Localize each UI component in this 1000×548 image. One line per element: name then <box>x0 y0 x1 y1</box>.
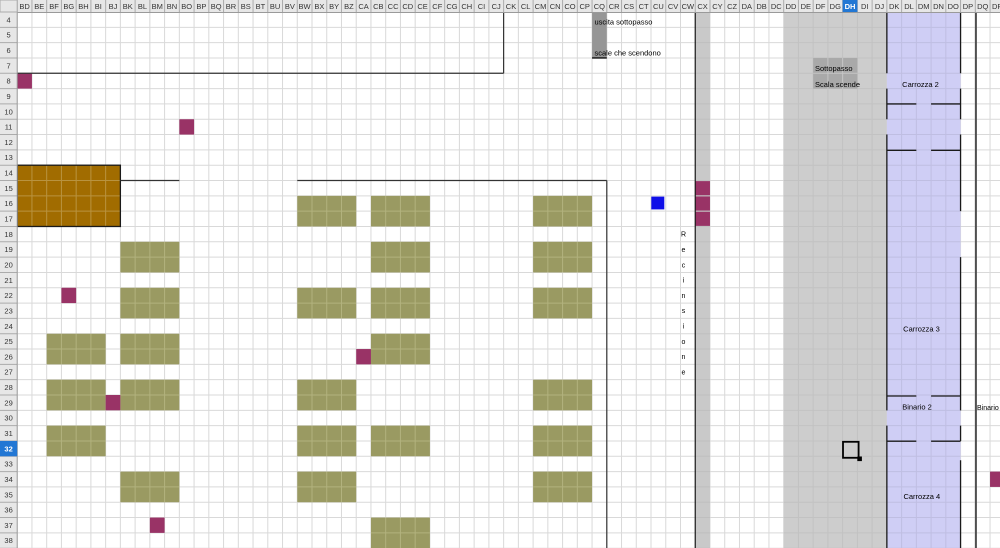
svg-text:16: 16 <box>4 199 12 208</box>
svg-text:37: 37 <box>4 521 12 530</box>
svg-text:CP: CP <box>579 2 589 11</box>
svg-text:Carrozza 4: Carrozza 4 <box>903 492 940 501</box>
svg-text:BT: BT <box>256 2 266 11</box>
svg-text:BY: BY <box>329 2 339 11</box>
svg-text:35: 35 <box>4 490 12 499</box>
svg-text:DC: DC <box>771 2 782 11</box>
svg-text:38: 38 <box>4 536 12 545</box>
svg-text:DN: DN <box>933 2 944 11</box>
svg-text:CD: CD <box>402 2 413 11</box>
svg-text:DP: DP <box>963 2 973 11</box>
svg-text:DO: DO <box>948 2 959 11</box>
svg-text:DE: DE <box>801 2 811 11</box>
svg-text:9: 9 <box>7 92 11 101</box>
svg-text:15: 15 <box>4 184 12 193</box>
svg-text:BF: BF <box>49 2 59 11</box>
svg-text:DI: DI <box>861 2 869 11</box>
svg-text:BE: BE <box>34 2 44 11</box>
svg-text:18: 18 <box>4 230 12 239</box>
svg-text:c: c <box>682 262 686 269</box>
svg-text:12: 12 <box>4 138 12 147</box>
svg-text:8: 8 <box>7 77 11 86</box>
svg-text:Binario: Binario <box>977 405 999 412</box>
svg-text:CW: CW <box>682 2 695 11</box>
svg-text:BH: BH <box>78 2 88 11</box>
svg-text:CN: CN <box>550 2 561 11</box>
svg-text:BK: BK <box>123 2 133 11</box>
svg-text:BR: BR <box>226 2 237 11</box>
svg-text:scale che scendono: scale che scendono <box>595 48 661 57</box>
svg-text:BQ: BQ <box>211 2 222 11</box>
svg-text:o: o <box>682 339 686 346</box>
svg-text:Scala scende: Scala scende <box>815 80 860 89</box>
svg-text:CX: CX <box>697 2 707 11</box>
svg-text:BO: BO <box>181 2 192 11</box>
svg-text:DB: DB <box>756 2 766 11</box>
svg-text:BV: BV <box>285 2 295 11</box>
svg-text:n: n <box>682 354 686 361</box>
svg-text:31: 31 <box>4 429 12 438</box>
svg-text:20: 20 <box>4 261 12 270</box>
svg-text:33: 33 <box>4 460 12 469</box>
svg-text:17: 17 <box>4 215 12 224</box>
svg-text:CC: CC <box>388 2 399 11</box>
svg-text:CG: CG <box>446 2 457 11</box>
svg-text:DD: DD <box>786 2 797 11</box>
svg-text:32: 32 <box>4 444 12 453</box>
svg-text:BN: BN <box>167 2 177 11</box>
svg-text:DR: DR <box>992 2 1000 11</box>
svg-text:14: 14 <box>4 169 12 178</box>
svg-text:DF: DF <box>816 2 826 11</box>
svg-text:CY: CY <box>712 2 722 11</box>
svg-text:CT: CT <box>639 2 649 11</box>
svg-text:e: e <box>682 247 686 254</box>
svg-text:BU: BU <box>270 2 280 11</box>
svg-text:24: 24 <box>4 322 12 331</box>
svg-text:CB: CB <box>373 2 383 11</box>
svg-text:DL: DL <box>904 2 914 11</box>
svg-text:BS: BS <box>241 2 251 11</box>
svg-text:BD: BD <box>19 2 30 11</box>
svg-text:CU: CU <box>653 2 664 11</box>
svg-text:CM: CM <box>535 2 547 11</box>
svg-text:BI: BI <box>95 2 102 11</box>
svg-text:36: 36 <box>4 506 12 515</box>
svg-text:BG: BG <box>63 2 74 11</box>
svg-text:CA: CA <box>358 2 368 11</box>
svg-text:BW: BW <box>299 2 312 11</box>
svg-text:R: R <box>681 232 686 239</box>
svg-text:11: 11 <box>5 123 13 132</box>
svg-text:CR: CR <box>609 2 620 11</box>
svg-text:BL: BL <box>138 2 147 11</box>
svg-text:CI: CI <box>478 2 486 11</box>
svg-text:22: 22 <box>4 291 12 300</box>
svg-text:BZ: BZ <box>344 2 354 11</box>
svg-text:26: 26 <box>4 352 12 361</box>
svg-text:CL: CL <box>521 2 531 11</box>
svg-text:5: 5 <box>7 31 11 40</box>
svg-text:DM: DM <box>918 2 930 11</box>
svg-text:BM: BM <box>152 2 163 11</box>
svg-text:29: 29 <box>4 398 12 407</box>
svg-text:21: 21 <box>4 276 12 285</box>
svg-text:DH: DH <box>845 2 856 11</box>
svg-text:34: 34 <box>4 475 12 484</box>
svg-text:DA: DA <box>742 2 752 11</box>
svg-text:DJ: DJ <box>875 2 884 11</box>
svg-text:Carrozza 2: Carrozza 2 <box>902 80 939 89</box>
svg-text:CK: CK <box>506 2 516 11</box>
svg-text:BP: BP <box>196 2 206 11</box>
svg-text:CS: CS <box>624 2 634 11</box>
svg-text:BJ: BJ <box>109 2 118 11</box>
svg-text:19: 19 <box>4 245 12 254</box>
svg-text:uscita sottopasso: uscita sottopasso <box>595 18 653 27</box>
svg-text:30: 30 <box>4 414 12 423</box>
svg-text:n: n <box>682 293 686 300</box>
svg-text:13: 13 <box>4 153 12 162</box>
svg-text:s: s <box>682 308 686 315</box>
svg-text:Sottopasso: Sottopasso <box>815 64 853 73</box>
svg-text:Carrozza 3: Carrozza 3 <box>903 324 940 333</box>
svg-text:CF: CF <box>432 2 442 11</box>
svg-text:BX: BX <box>314 2 324 11</box>
svg-text:DQ: DQ <box>977 2 988 11</box>
svg-text:4: 4 <box>7 15 11 24</box>
svg-text:CV: CV <box>668 2 678 11</box>
svg-text:CO: CO <box>564 2 575 11</box>
svg-text:Binario 2: Binario 2 <box>902 403 932 412</box>
svg-text:CH: CH <box>461 2 472 11</box>
svg-text:23: 23 <box>4 306 12 315</box>
svg-text:DK: DK <box>889 2 899 11</box>
svg-text:25: 25 <box>4 337 12 346</box>
svg-text:CE: CE <box>417 2 427 11</box>
svg-text:CZ: CZ <box>727 2 737 11</box>
svg-text:28: 28 <box>4 383 12 392</box>
svg-text:CQ: CQ <box>594 2 605 11</box>
svg-text:10: 10 <box>4 107 12 116</box>
svg-text:CJ: CJ <box>492 2 501 11</box>
svg-text:7: 7 <box>7 61 11 70</box>
svg-text:27: 27 <box>4 368 12 377</box>
svg-text:6: 6 <box>7 46 11 55</box>
svg-text:DG: DG <box>830 2 841 11</box>
svg-text:e: e <box>682 370 686 377</box>
